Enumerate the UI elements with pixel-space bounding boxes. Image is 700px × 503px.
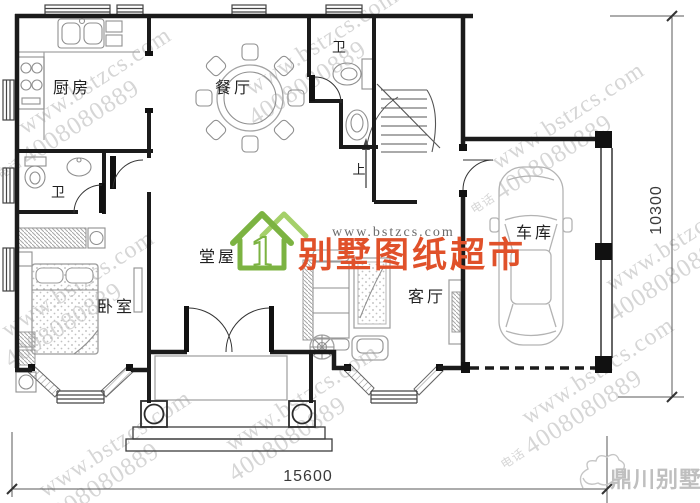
room-label-bath-top: 卫: [332, 41, 346, 56]
brand-logo: 鼎川别墅: [580, 455, 700, 492]
floor-plan-svg: www.bstzcs.com电话4008080889www.bstzcs.com…: [0, 0, 700, 503]
watermark-text: 电话: [498, 446, 527, 472]
watermark-text: 电话: [0, 156, 25, 182]
window-left-3: [3, 248, 14, 291]
watermark-group: www.bstzcs.com4008080889: [209, 339, 398, 487]
stove: [17, 57, 44, 109]
bed: [32, 264, 98, 354]
column-2: [595, 243, 612, 260]
room-label-living: 客厅: [408, 288, 446, 306]
bay-window-bedroom: [27, 364, 134, 403]
stair-arrow: [362, 97, 398, 188]
door-bedroom: [110, 156, 143, 189]
plant-table: [310, 335, 334, 359]
column-3: [595, 356, 612, 373]
watermark-group: www.bstzcs.com电话4008080889: [480, 312, 694, 476]
watermark-text: 电话: [468, 191, 497, 217]
watermark-group: www.bstzcs.com4008080889: [22, 385, 211, 503]
room-label-kitchen: 厨房: [53, 79, 91, 97]
porch-columns: [141, 401, 315, 427]
dimension-height-label: 10300: [648, 185, 665, 235]
site-logo: 1 www.bstzcs.com 别墅图纸超市: [233, 214, 526, 276]
room-label-bedroom: 卧室: [97, 298, 135, 316]
window-left-1: [3, 80, 14, 120]
stair-up-label: 上: [352, 162, 365, 177]
tv-cabinet: [449, 280, 462, 344]
door-entry-double: [184, 306, 274, 352]
logo-numeral: 1: [251, 227, 273, 276]
brand-name: 鼎川别墅: [610, 467, 700, 492]
wardrobe: [134, 268, 142, 312]
door-bath-left: [74, 183, 105, 213]
floor-plan-page: www.bstzcs.com电话4008080889www.bstzcs.com…: [0, 0, 700, 503]
room-label-hall: 堂屋: [199, 248, 237, 266]
basin-left: [67, 158, 91, 176]
staircase: [377, 84, 440, 152]
logo-site-name: 别墅图纸超市: [298, 236, 526, 275]
column-1: [595, 131, 612, 148]
room-label-dining: 餐厅: [215, 79, 253, 97]
basin-top: [346, 110, 368, 140]
room-label-bath-left: 卫: [51, 186, 65, 201]
dimension-width-label: 15600: [283, 468, 333, 485]
